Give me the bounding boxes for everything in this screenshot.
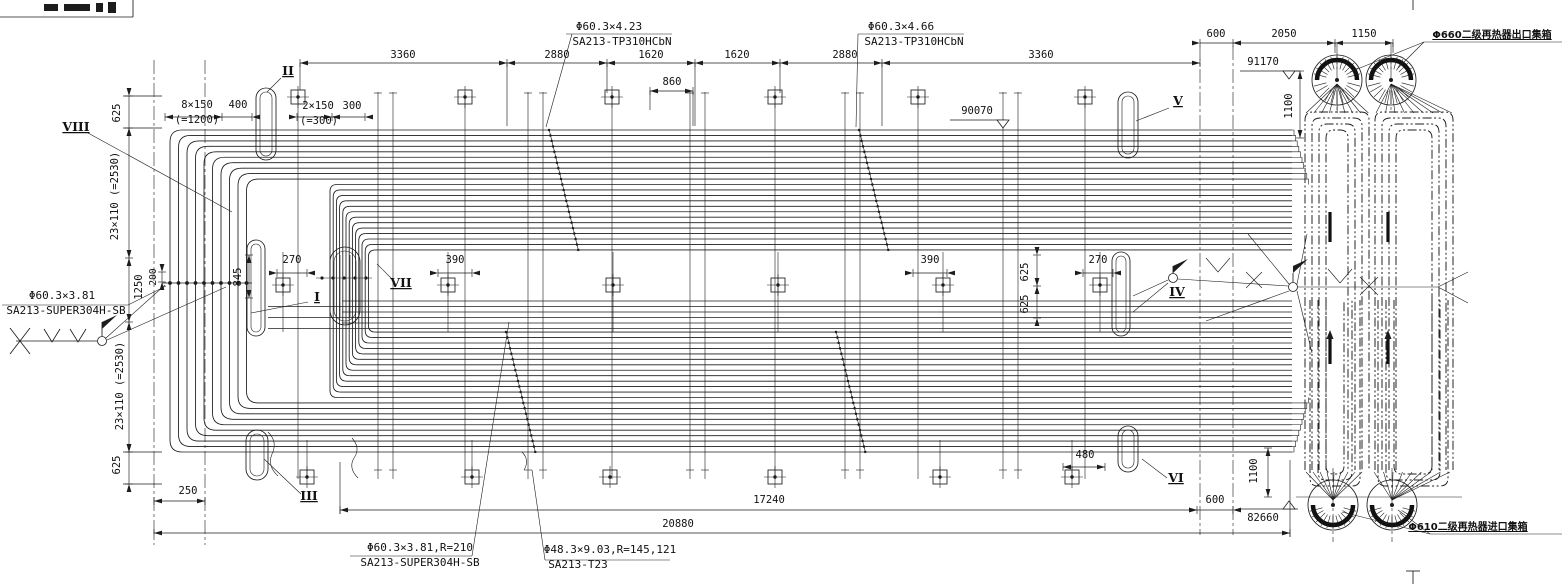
dim-625-mid-1: 625 [1019, 263, 1031, 282]
material-callout-1-spec: Φ60.3×4.23 [576, 20, 642, 33]
section-mark-ii: II [282, 63, 294, 78]
label-outlet-header: Φ660二级再热器出口集箱 [1432, 28, 1551, 41]
material-callout-left-spec: Φ60.3×3.81 [29, 289, 95, 302]
material-callout-bottom-1-spec: Φ60.3×3.81,R=210 [367, 541, 473, 554]
section-mark-v: V [1172, 93, 1183, 108]
dim-480: 480 [1076, 449, 1095, 461]
dim-23x110-lower: 23×110 (=2530) [114, 342, 126, 431]
dim-1100-bottom: 1100 [1248, 458, 1260, 483]
dim-1250: 1250 [133, 274, 145, 299]
level-91170: 91170 [1247, 56, 1279, 68]
dim-625-mid-2: 625 [1019, 295, 1031, 314]
dim-600-bottom: 600 [1206, 494, 1225, 506]
material-callout-2-grade: SA213-TP310HCbN [864, 35, 963, 48]
material-callout-1-grade: SA213-TP310HCbN [572, 35, 671, 48]
dim-390-right: 390 [921, 254, 940, 266]
material-callout-bottom-2-spec: Φ48.3×9.03,R=145,121 [544, 543, 676, 556]
dim-17240: 17240 [753, 494, 785, 506]
dim-2050: 2050 [1271, 28, 1296, 40]
label-inlet-header: Φ610二级再热器进口集箱 [1408, 520, 1527, 533]
cad-drawing-sheet: 3360288016201620288033608606002050115011… [0, 0, 1566, 586]
dim-8x150: 8×150 [181, 99, 213, 111]
section-mark-vi: VI [1167, 470, 1184, 485]
dim-270-left: 270 [283, 254, 302, 266]
dimension-lines [123, 39, 1393, 537]
horizontal-tube-banks [170, 130, 1308, 452]
dim-390-left: 390 [446, 254, 465, 266]
dim-845: 845 [232, 268, 244, 287]
dim-eq1200: (=1200) [175, 114, 219, 126]
dim-200: 200 [148, 268, 159, 285]
dim-1620-a: 1620 [638, 49, 663, 61]
level-82660: 82660 [1247, 512, 1279, 524]
dim-250: 250 [179, 485, 198, 497]
level-90070: 90070 [961, 105, 993, 117]
dim-860: 860 [663, 76, 682, 88]
dim-2880-a: 2880 [544, 49, 569, 61]
dim-400: 400 [229, 99, 248, 111]
section-mark-i: I [314, 289, 320, 304]
middle-tube-band [162, 276, 1292, 328]
dim-20880: 20880 [662, 518, 694, 530]
dim-1620-b: 1620 [724, 49, 749, 61]
dim-1150: 1150 [1351, 28, 1376, 40]
dim-23x110-upper: 23×110 (=2530) [109, 152, 121, 241]
material-callout-bottom-2-grade: SA213-T23 [548, 558, 608, 571]
dim-3360-a: 3360 [390, 49, 415, 61]
section-mark-vii: VII [389, 275, 412, 290]
section-mark-iv: IV [1169, 284, 1185, 299]
material-callout-2-spec: Φ60.3×4.66 [868, 20, 934, 33]
material-callout-left-grade: SA213-SUPER304H-SB [6, 304, 126, 317]
dim-3360-b: 3360 [1028, 49, 1053, 61]
dim-625-top-left: 625 [111, 104, 123, 123]
dim-625-bottom-left: 625 [111, 456, 123, 475]
dim-600-top: 600 [1207, 28, 1226, 40]
section-mark-iii: III [300, 488, 318, 503]
material-callout-bottom-1-grade: SA213-SUPER304H-SB [360, 556, 480, 569]
section-mark-viii: VIII [61, 119, 89, 134]
weld-and-flag-symbols [10, 71, 1468, 509]
dim-1100-top: 1100 [1283, 93, 1295, 118]
dim-300: 300 [343, 100, 362, 112]
pendant-coil-section [1296, 44, 1462, 542]
dim-2x150: 2×150 [302, 100, 334, 112]
dim-eq300: (=300) [300, 115, 338, 127]
drawing-canvas: 3360288016201620288033608606002050115011… [0, 0, 1566, 586]
tube-bend-loops [246, 88, 1138, 480]
dim-270-right: 270 [1089, 254, 1108, 266]
dim-2880-b: 2880 [832, 49, 857, 61]
